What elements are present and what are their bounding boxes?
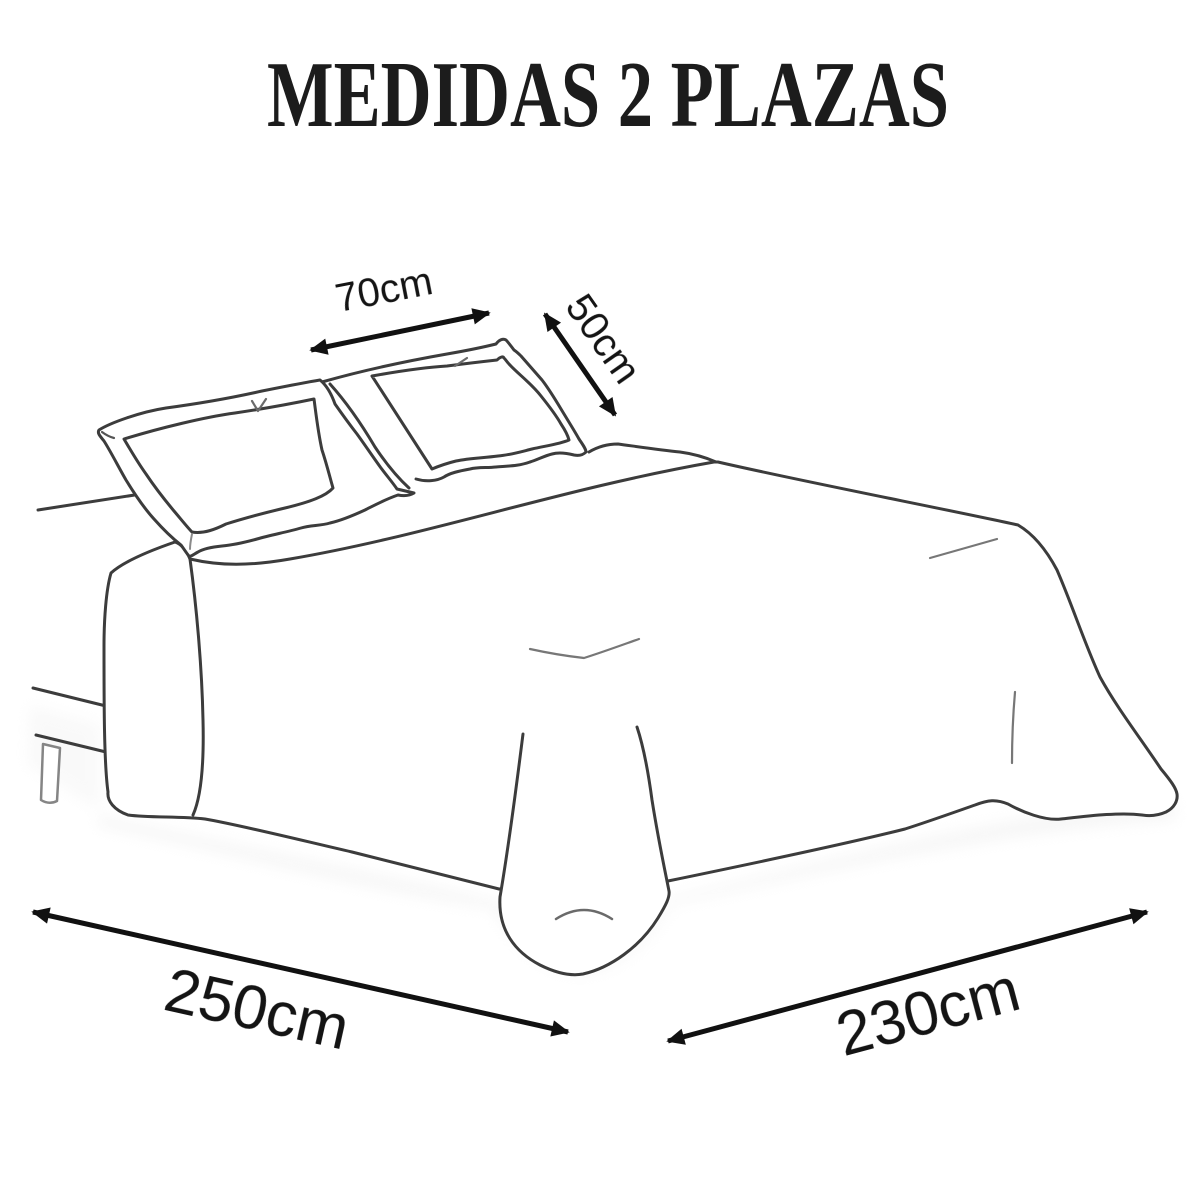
svg-text:MEDIDAS 2 PLAZAS: MEDIDAS 2 PLAZAS [267,43,949,147]
